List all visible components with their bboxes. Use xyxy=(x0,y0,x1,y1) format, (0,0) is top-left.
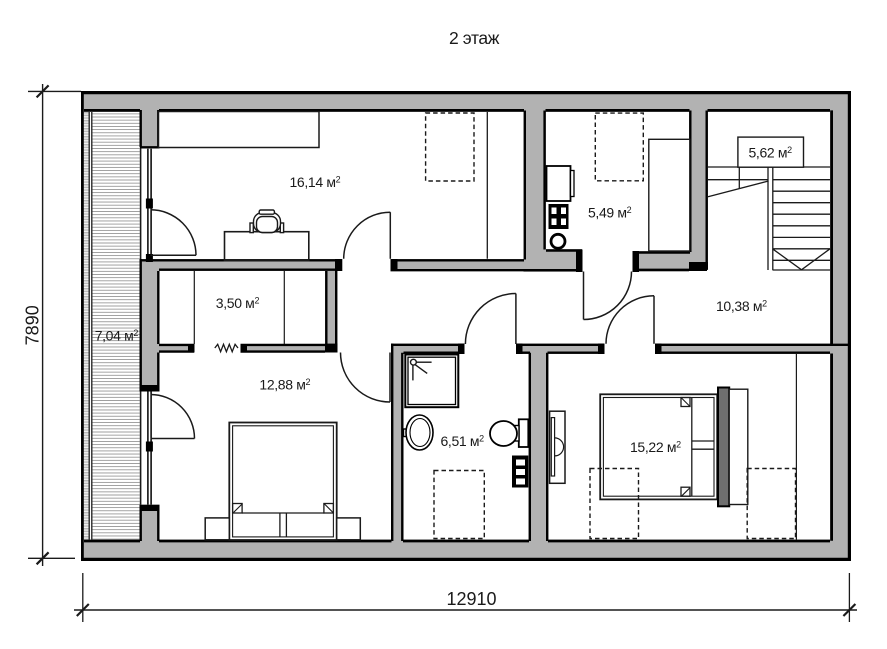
svg-text:12,88 м2: 12,88 м2 xyxy=(259,377,310,393)
svg-text:10,38 м2: 10,38 м2 xyxy=(716,298,767,314)
svg-text:2 этаж: 2 этаж xyxy=(449,28,500,48)
svg-text:3,50 м2: 3,50 м2 xyxy=(216,295,260,311)
svg-text:6,51 м2: 6,51 м2 xyxy=(441,433,485,449)
svg-text:5,49 м2: 5,49 м2 xyxy=(588,205,632,221)
svg-text:7890: 7890 xyxy=(23,305,43,345)
svg-text:15,22 м2: 15,22 м2 xyxy=(630,439,681,455)
svg-text:5,62 м2: 5,62 м2 xyxy=(749,145,793,161)
svg-text:16,14 м2: 16,14 м2 xyxy=(290,174,341,190)
svg-text:7,04 м2: 7,04 м2 xyxy=(95,328,139,344)
svg-text:12910: 12910 xyxy=(446,589,496,609)
